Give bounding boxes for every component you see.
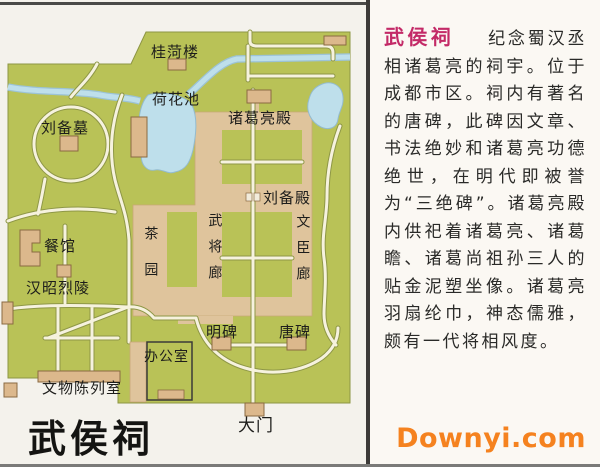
description-paragraph: 武侯祠纪念蜀汉丞相诸葛亮的祠宇。位于成都市区。祠内有著名的唐碑，此碑因文章、书法…	[384, 24, 587, 356]
label-ming-stele: 明碑	[206, 324, 238, 341]
label-restaurant: 餐馆	[44, 238, 76, 255]
label-guihelou: 桂菏楼	[151, 44, 199, 61]
label-military-gallery: 武将廊	[206, 213, 221, 291]
article-body: 纪念蜀汉丞相诸葛亮的祠宇。位于成都市区。祠内有著名的唐碑，此碑因文章、书法绝妙和…	[384, 29, 587, 352]
map-title: 武侯祠	[28, 408, 154, 463]
label-liubei-hall: 刘备殿	[263, 190, 311, 207]
label-lotus-pond: 荷花池	[152, 91, 200, 108]
watermark-text: Downyi.com	[396, 423, 586, 454]
label-tea-garden: 茶园	[142, 226, 157, 298]
label-zhugeliang-hall: 诸葛亮殿	[228, 110, 292, 127]
label-hanzhaolie-mausoleum: 汉昭烈陵	[26, 280, 90, 297]
label-office: 办公室	[144, 350, 189, 365]
article-title: 武侯祠	[384, 25, 454, 49]
label-tang-stele: 唐碑	[279, 324, 311, 341]
description-panel: 武侯祠纪念蜀汉丞相诸葛亮的祠宇。位于成都市区。祠内有著名的唐碑，此碑因文章、书法…	[370, 0, 600, 467]
label-relics-room: 文物陈列室	[42, 380, 122, 397]
label-civil-gallery: 文臣廊	[294, 214, 309, 292]
label-liubei-tomb: 刘备墓	[41, 120, 89, 137]
scanned-page: 桂菏楼 荷花池 刘备墓 诸葛亮殿 刘备殿 茶园 武将廊 文臣廊 餐馆 汉昭烈陵 …	[0, 0, 600, 467]
label-main-gate: 大门	[238, 417, 274, 436]
map-section: 桂菏楼 荷花池 刘备墓 诸葛亮殿 刘备殿 茶园 武将廊 文臣廊 餐馆 汉昭烈陵 …	[0, 0, 367, 467]
